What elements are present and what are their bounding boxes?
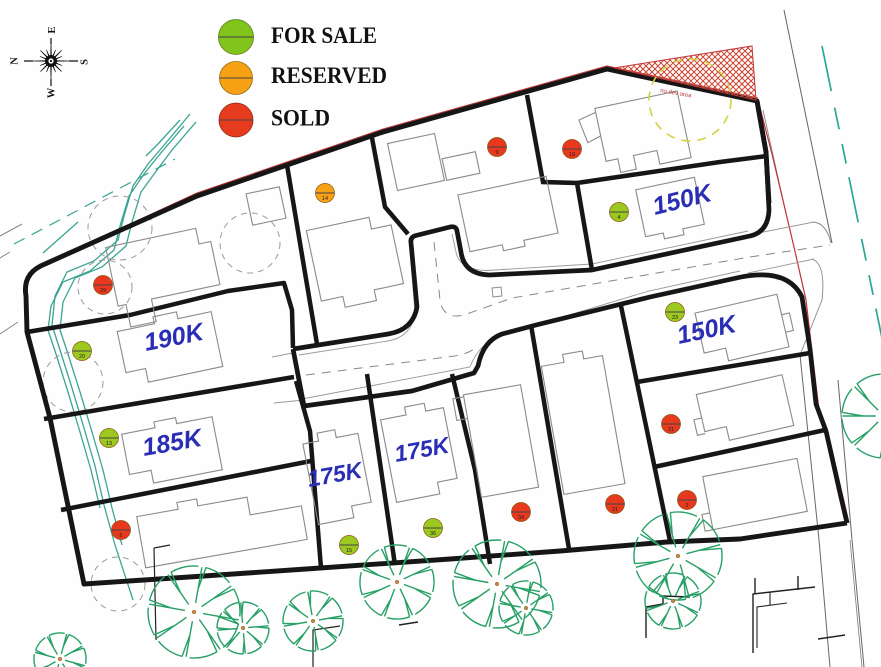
svg-text:9: 9	[495, 150, 498, 156]
svg-text:23: 23	[672, 315, 678, 321]
svg-text:36: 36	[430, 531, 436, 537]
svg-text:FOR SALE: FOR SALE	[271, 23, 377, 49]
svg-text:20: 20	[79, 354, 85, 360]
svg-text:34: 34	[518, 515, 524, 521]
svg-text:S: S	[80, 59, 91, 65]
svg-text:W: W	[47, 87, 58, 98]
svg-text:29: 29	[100, 288, 106, 294]
svg-text:31: 31	[668, 427, 674, 433]
svg-text:13: 13	[106, 441, 112, 447]
svg-text:2: 2	[685, 503, 688, 509]
svg-text:N: N	[10, 57, 21, 65]
svg-text:6: 6	[119, 533, 122, 539]
svg-text:RESERVED: RESERVED	[271, 63, 387, 89]
svg-text:4: 4	[617, 215, 620, 221]
svg-text:14: 14	[322, 196, 328, 202]
svg-text:E: E	[47, 26, 58, 33]
svg-text:SOLD: SOLD	[271, 106, 330, 132]
svg-text:15: 15	[346, 548, 352, 554]
svg-text:21: 21	[612, 507, 618, 513]
svg-text:19: 19	[569, 152, 575, 158]
